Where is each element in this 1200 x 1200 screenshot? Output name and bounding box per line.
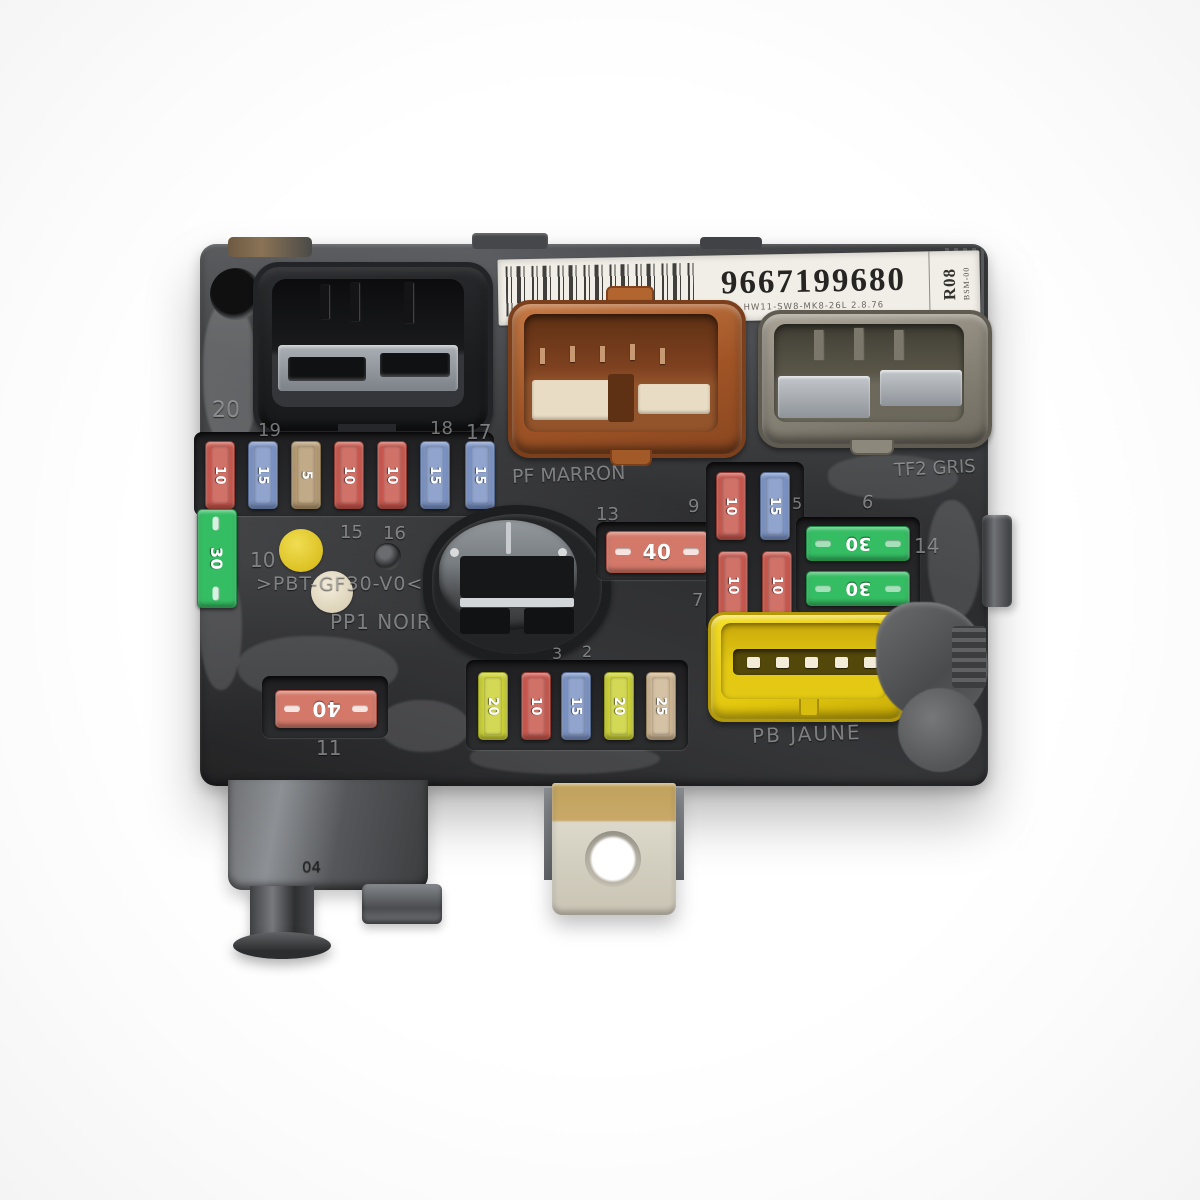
terminal-slot: [524, 608, 574, 634]
connector-pin: [506, 522, 511, 554]
yellow-connector-label: PB JAUNE: [752, 720, 862, 748]
connector-pin: [854, 328, 863, 360]
connector-pin: [814, 330, 823, 360]
orange-connector-socket: [508, 300, 746, 458]
connector-pin: [320, 285, 329, 319]
fuse-15a: 15: [465, 441, 495, 509]
terminal-nub: [805, 657, 818, 668]
fuse-30a: 30: [197, 509, 237, 608]
gray-connector-label: TF2 GRIS: [894, 456, 977, 481]
connector-pin: [630, 344, 635, 360]
fuse-40a: 40: [606, 531, 708, 573]
connector-key-slot: [608, 374, 634, 422]
connector-pin: [540, 348, 545, 364]
slot-number: 10: [250, 548, 275, 572]
scuff-mark: [380, 700, 470, 752]
fuse-5a: 5: [291, 441, 321, 509]
black-connector-socket: [253, 262, 493, 436]
side-latch-tab: [982, 515, 1012, 607]
connector-pin: [894, 330, 903, 360]
fuse-10a: 10: [205, 441, 235, 509]
terminal-slot: [288, 357, 366, 381]
bolt-hole: [585, 831, 641, 887]
fuse-10a: 10: [716, 472, 746, 540]
slot-number: 7: [692, 590, 703, 611]
connector-latch-tab: [799, 699, 819, 717]
fuse-10a: 10: [521, 672, 551, 740]
fuse-25a: 25: [646, 672, 676, 740]
connector-pin: [570, 346, 575, 362]
fuse-20a: 20: [604, 672, 634, 740]
slot-number: 18: [430, 418, 453, 439]
fuse-15a: 15: [760, 472, 790, 540]
terminal-nub: [776, 657, 789, 668]
damaged-area: [898, 688, 982, 772]
yellow-paint-dot: [279, 529, 323, 572]
bracket-code: 04: [302, 858, 321, 876]
fuse-10a: 10: [718, 551, 748, 619]
terminal-slot-row: [733, 649, 891, 675]
ribbed-edge: [952, 626, 986, 688]
connector-pin: [350, 283, 359, 321]
fuse-10a: 10: [762, 551, 792, 619]
connector-pin: [404, 283, 413, 323]
fuse-30a: 30: [806, 571, 910, 606]
slot-number: 13: [596, 504, 619, 525]
connector-pin: [600, 346, 605, 362]
connector-shelf: [460, 556, 574, 598]
slot-number: 11: [316, 736, 341, 760]
fuse-10a: 10: [334, 441, 364, 509]
screw-boss: [374, 543, 401, 570]
terminal-block: [778, 376, 870, 418]
slot-number: 3: [552, 644, 562, 663]
slot-number: 19: [258, 420, 281, 441]
connector-pin: [660, 348, 665, 364]
orange-connector-label: PF MARRON: [512, 462, 626, 488]
terminal-slot: [460, 608, 510, 634]
fuse-15a: 15: [420, 441, 450, 509]
fuse-40a: 40: [275, 690, 377, 728]
material-marking: >PBT-GF30-V0<: [256, 573, 423, 595]
slot-number: 17: [466, 420, 491, 444]
label-side-code: R08: [939, 268, 960, 301]
fuse-30a: 30: [806, 526, 910, 561]
rivet: [450, 548, 459, 557]
slot-number: 5: [792, 494, 802, 513]
terminal-nub: [835, 657, 848, 668]
part-number: 9667199680: [721, 263, 907, 300]
mounting-foot-bracket: [228, 780, 428, 890]
terminal-nub: [747, 657, 760, 668]
damaged-corner: [228, 237, 312, 257]
terminal-block: [880, 370, 962, 406]
fuse-15a: 15: [248, 441, 278, 509]
connector-latch-tab: [850, 440, 894, 455]
slot-number: 14: [914, 534, 939, 558]
terminal-nub: [864, 657, 877, 668]
gray-connector-socket: [758, 310, 992, 448]
housing-color-marking: PP1 NOIR: [330, 610, 432, 634]
top-edge-bump: [700, 237, 762, 249]
slot-number: 2: [582, 642, 592, 661]
top-edge-bump: [472, 233, 548, 249]
fuse-20a: 20: [478, 672, 508, 740]
slot-number: 15: [340, 522, 363, 543]
slot-number: 16: [383, 523, 406, 544]
slot-number: 20: [212, 398, 240, 423]
metal-mounting-bracket: [552, 783, 676, 915]
fuse-15a: 15: [561, 672, 591, 740]
fuse-10a: 10: [377, 441, 407, 509]
terminal-slot: [380, 353, 450, 377]
mounting-foot-cap: [233, 932, 331, 959]
terminal-block: [638, 384, 710, 414]
terminal-strip: [460, 598, 574, 607]
photo-fuse-box-module: 9667199680 HW11-SW8-MK8-26L 2.8.76 R08 B…: [0, 0, 1200, 1200]
oval-connector-socket: [423, 505, 611, 663]
slot-number: 9: [688, 496, 699, 517]
side-clip: [362, 884, 442, 924]
label-side-code-small: BSM-00: [961, 267, 971, 301]
